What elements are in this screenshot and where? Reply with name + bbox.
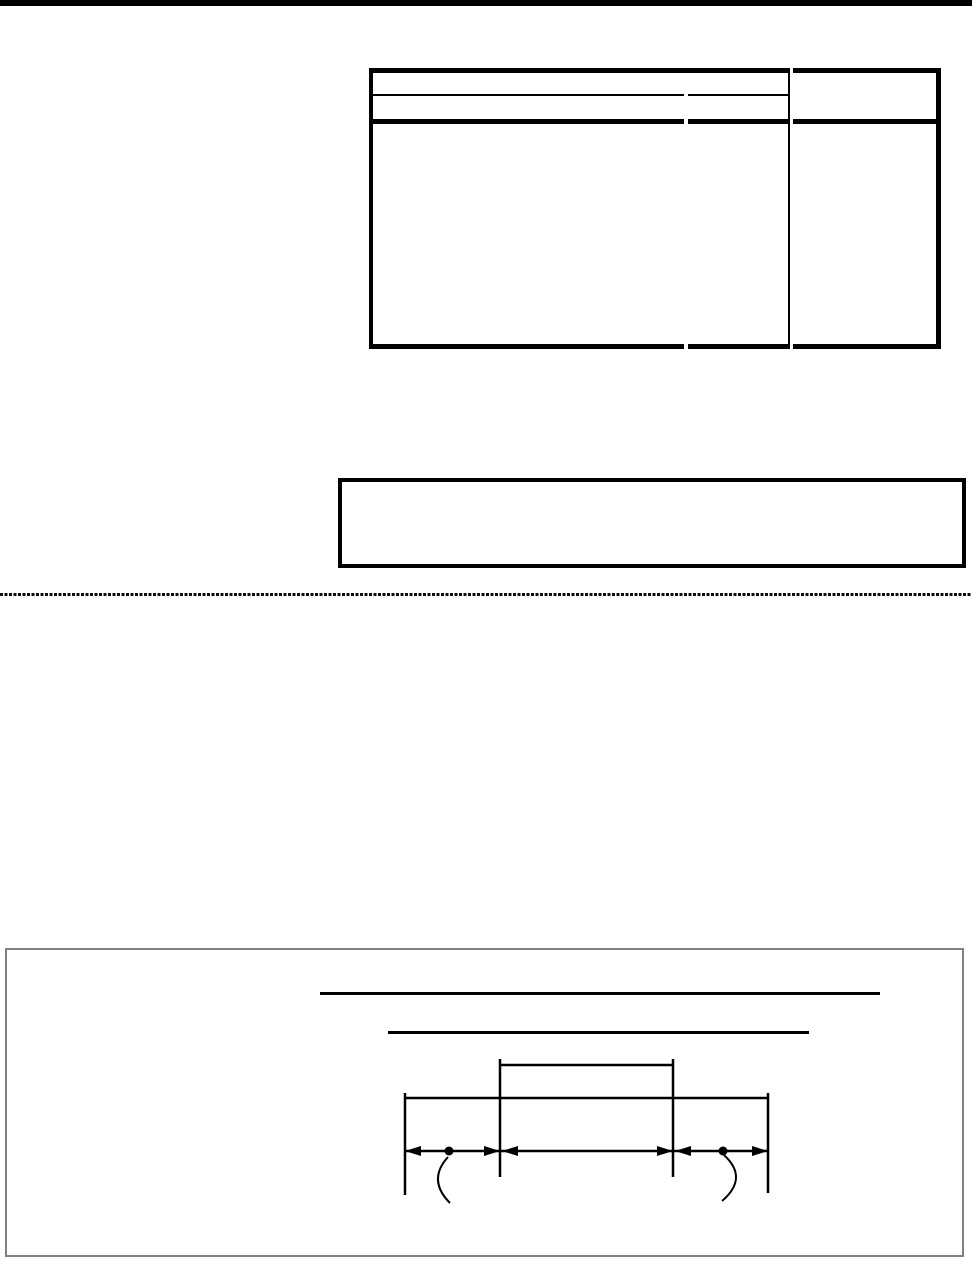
- table-column-divider: [788, 68, 790, 349]
- table-top-border-right: [793, 68, 941, 73]
- manual-page: [0, 0, 972, 1266]
- table-bottom-border-3: [793, 344, 941, 349]
- table-right-border: [936, 68, 941, 349]
- note-box: [338, 478, 966, 568]
- table-top-border: [371, 68, 789, 73]
- reference-dot-left: [445, 1147, 454, 1156]
- table-header-separator: [371, 119, 684, 124]
- leader-arc-left: [438, 1157, 450, 1203]
- table-header-separator-2: [688, 119, 789, 124]
- table-bottom-border-2: [688, 344, 789, 349]
- table-left-border: [369, 68, 373, 349]
- dimension-diagram: [0, 1040, 972, 1220]
- figure-title-underline: [320, 992, 880, 995]
- arrowhead-right-icon: [752, 1146, 768, 1156]
- arrowhead-inner-right-a-icon: [657, 1146, 673, 1156]
- reference-dot-right: [719, 1147, 728, 1156]
- arrowhead-inner-left-b-icon: [502, 1146, 518, 1156]
- dashed-divider-line: [0, 593, 972, 596]
- table-header-underline: [371, 94, 684, 96]
- table-header-underline-2: [688, 94, 789, 96]
- table-bottom-border: [371, 344, 684, 349]
- arrowhead-inner-right-b-icon: [675, 1146, 691, 1156]
- arrowhead-left-icon: [405, 1146, 421, 1156]
- figure-subtitle-underline: [388, 1031, 809, 1034]
- table-header-separator-3: [793, 119, 941, 124]
- page-header-rule: [0, 0, 972, 6]
- arrowhead-inner-left-a-icon: [484, 1146, 500, 1156]
- leader-arc-right: [722, 1155, 736, 1201]
